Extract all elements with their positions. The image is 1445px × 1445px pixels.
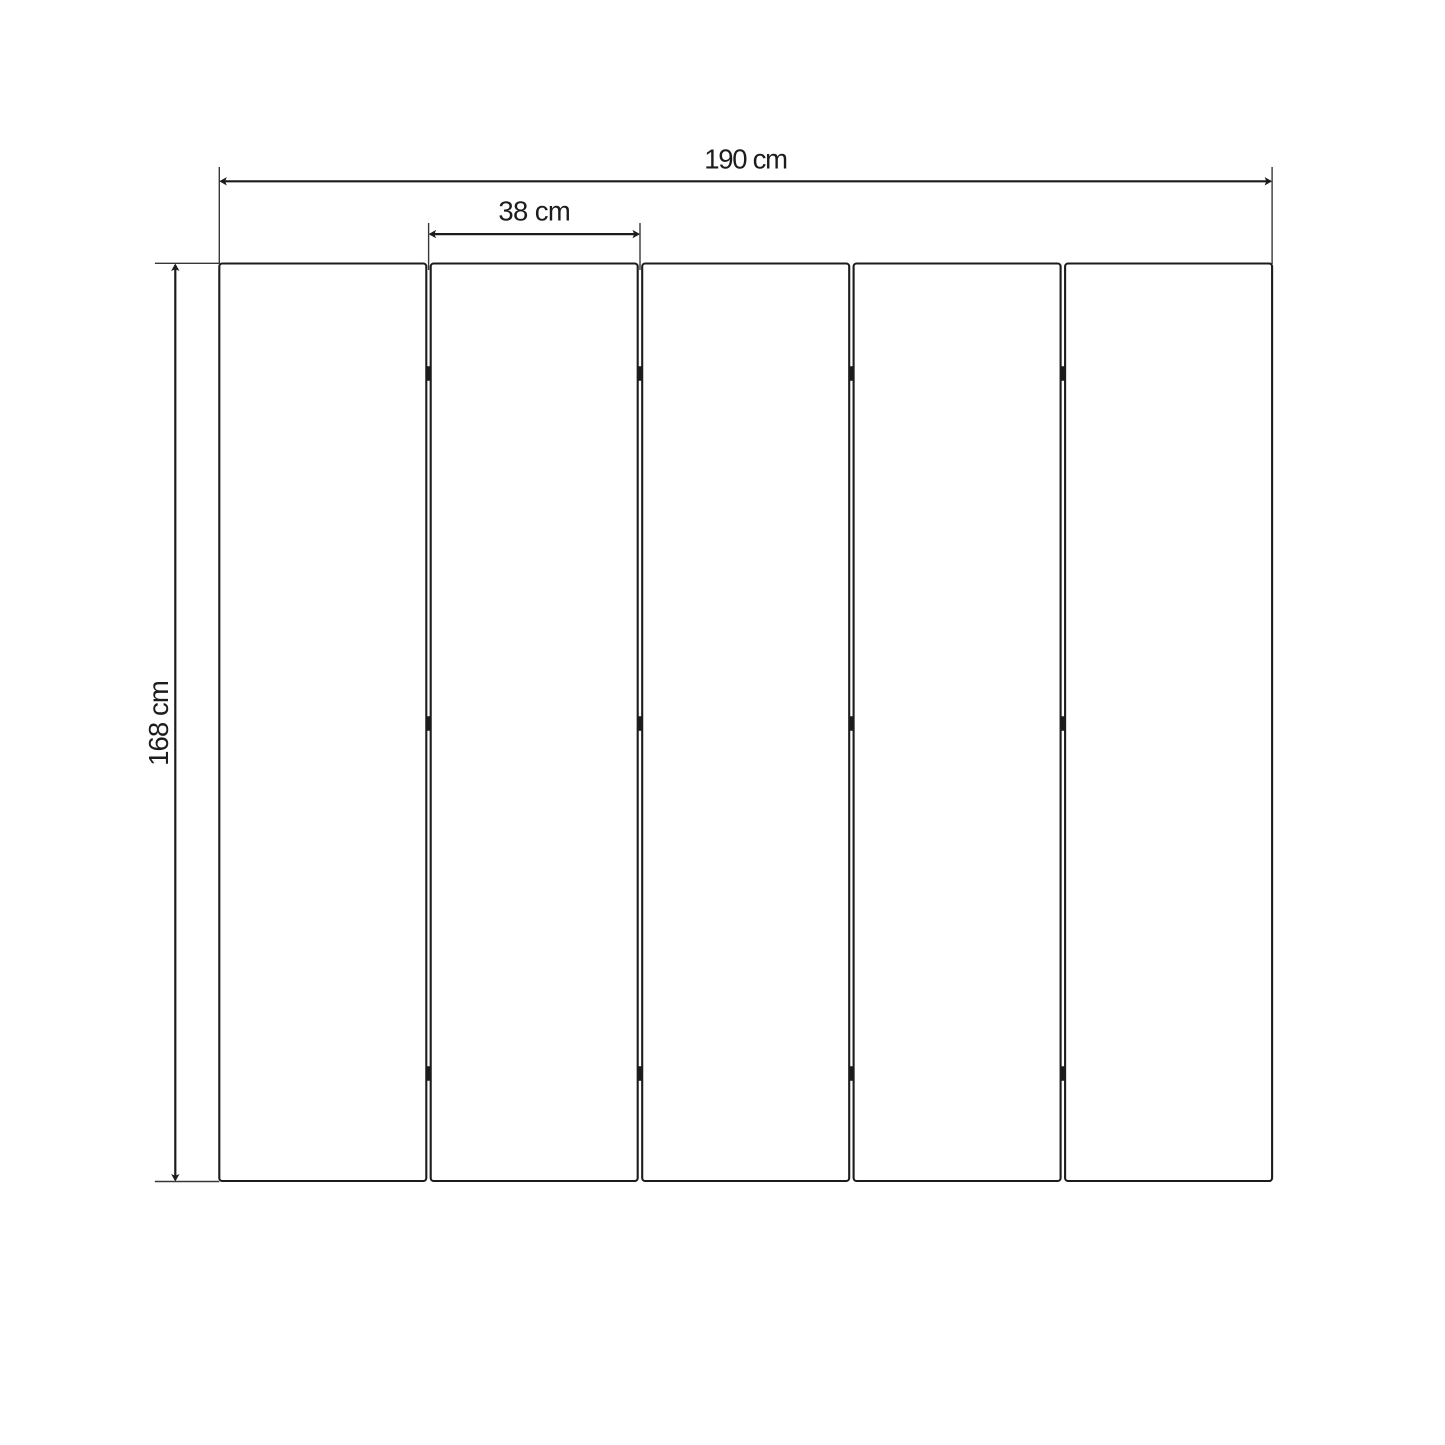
svg-text:190 cm: 190 cm bbox=[704, 143, 787, 174]
svg-text:38 cm: 38 cm bbox=[498, 195, 570, 226]
svg-text:168 cm: 168 cm bbox=[143, 681, 174, 766]
